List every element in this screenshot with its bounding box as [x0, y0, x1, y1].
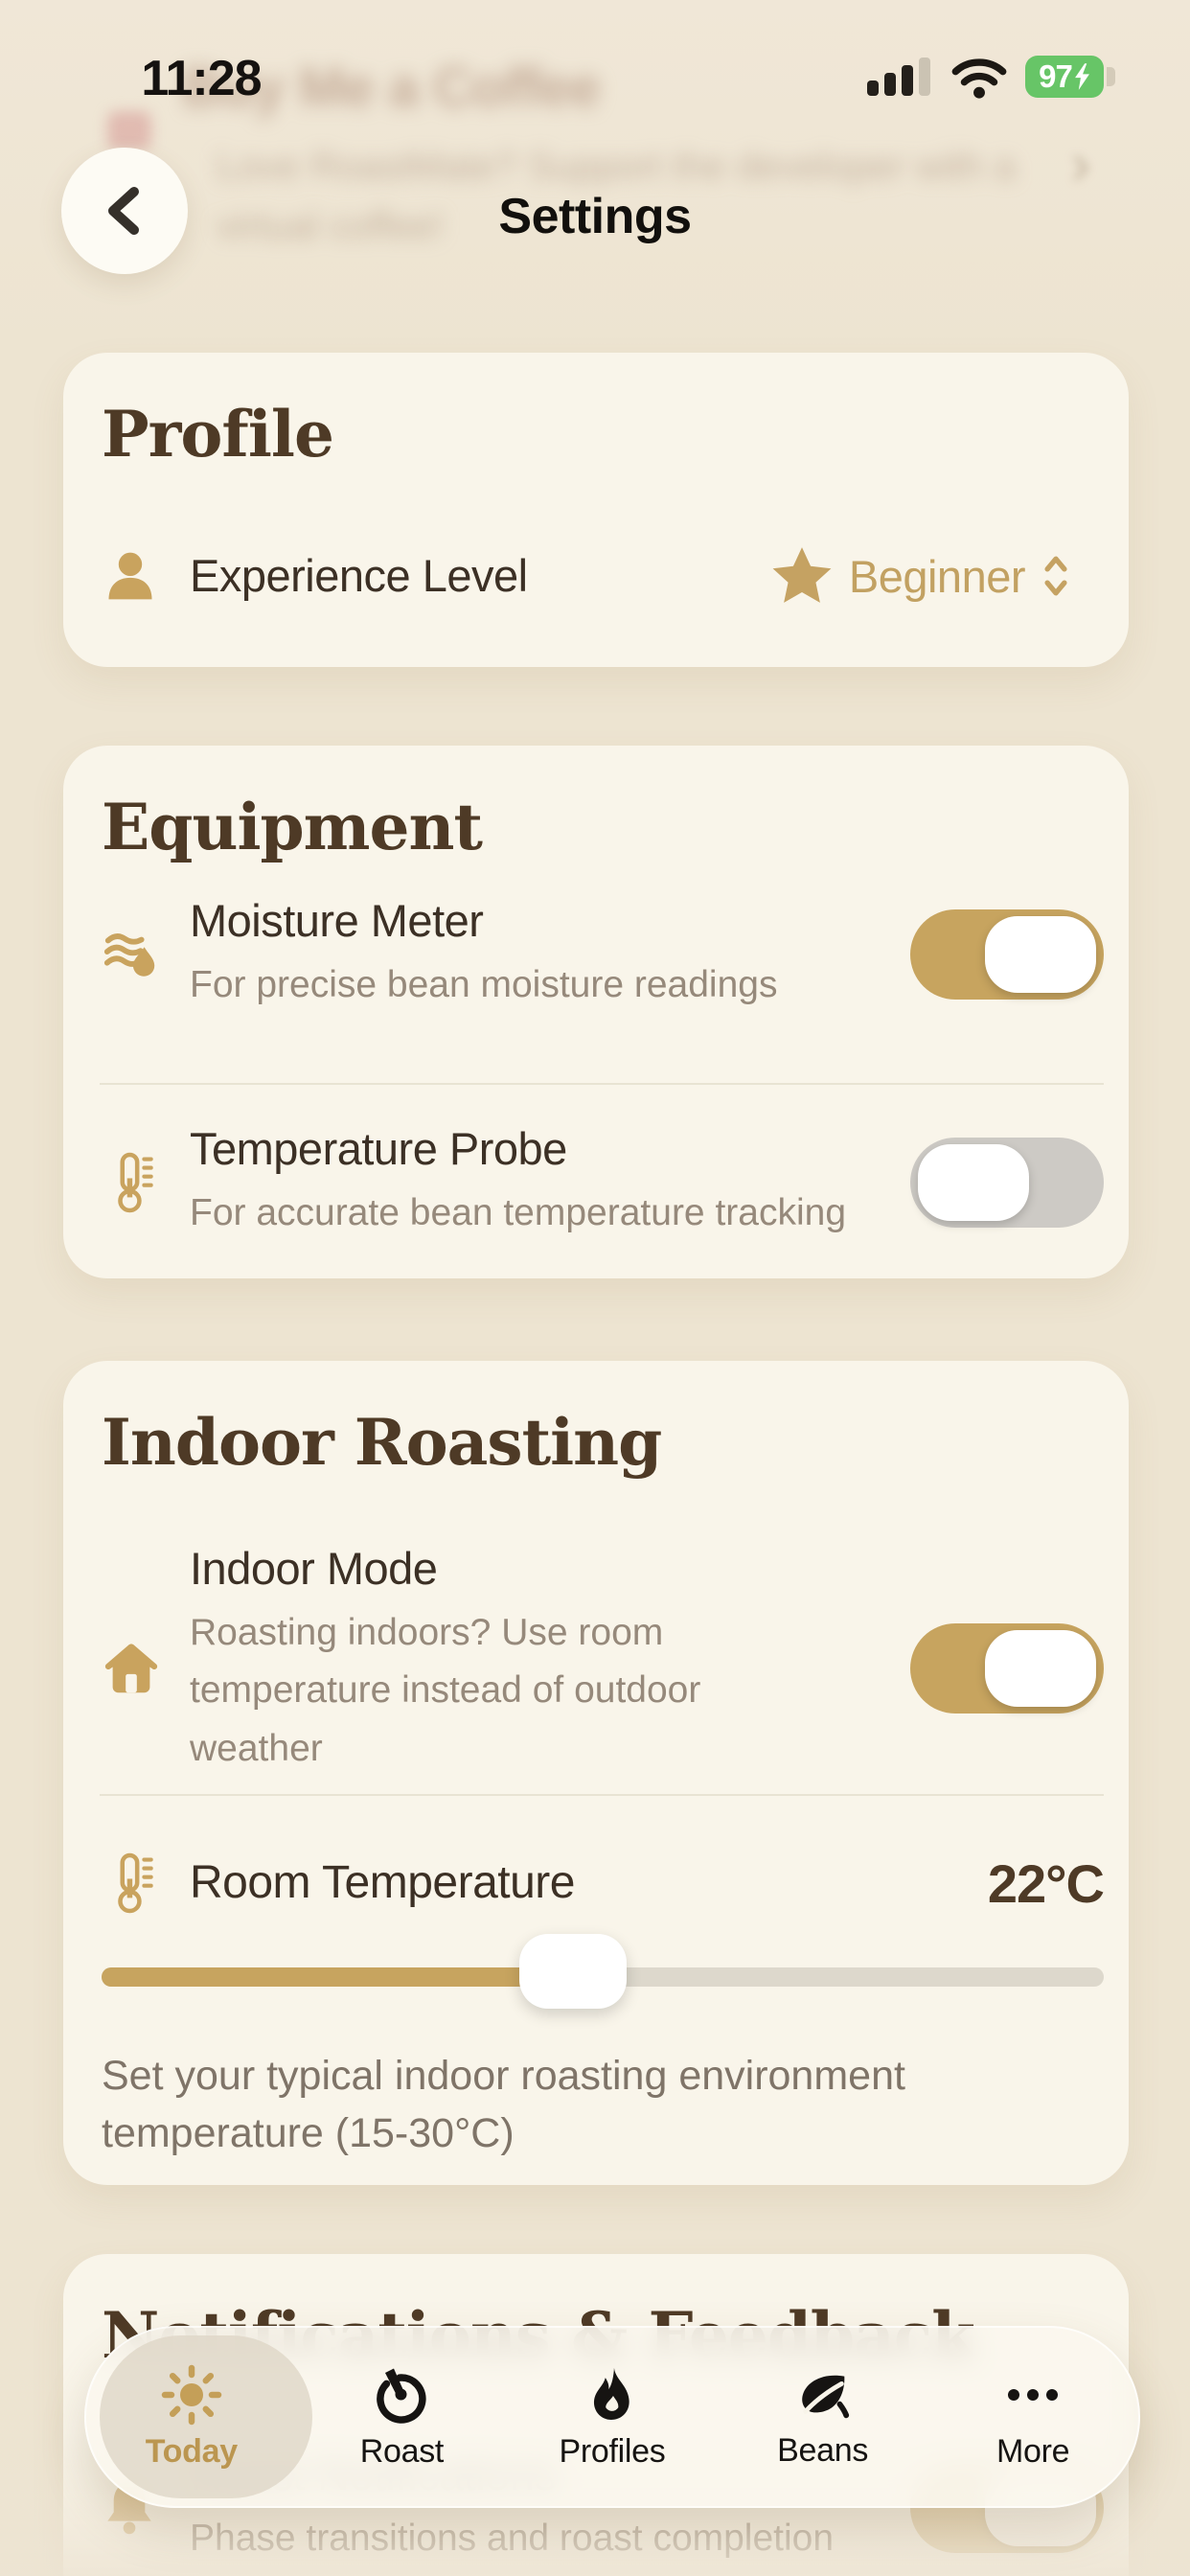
cellular-signal-icon [867, 56, 936, 96]
divider [100, 1083, 1104, 1085]
charging-bolt-icon [1074, 63, 1090, 90]
wifi-icon [950, 57, 1008, 100]
battery-indicator: 97 [1025, 56, 1104, 98]
indoor-roasting-card: Indoor Roasting Indoor Mode Roasting ind… [63, 1361, 1129, 2185]
profile-card: Profile Experience Level Beginner [63, 353, 1129, 667]
indoor-mode-subtitle: Roasting indoors? Use room temperature i… [190, 1604, 765, 1778]
timer-icon [371, 2364, 432, 2426]
toggle-knob [985, 916, 1096, 993]
temperature-probe-toggle[interactable] [910, 1138, 1104, 1228]
toggle-knob [918, 1144, 1029, 1221]
star-icon [770, 545, 834, 607]
room-temperature-row: Room Temperature 22°C [102, 1838, 1104, 1928]
tab-profiles[interactable]: Profiles [507, 2328, 718, 2506]
experience-level-row[interactable]: Experience Level Beginner [102, 514, 1104, 638]
indoor-mode-title: Indoor Mode [190, 1543, 910, 1595]
settings-screen: Buy Me a Coffee Love RoastMate? Support … [0, 0, 1190, 2576]
thermometer-icon [102, 1851, 157, 1915]
tab-roast-label: Roast [360, 2433, 444, 2471]
profile-heading: Profile [102, 397, 333, 471]
moisture-meter-row: Moisture Meter For precise bean moisture… [102, 887, 1104, 1022]
flame-icon [583, 2364, 642, 2426]
tab-profiles-label: Profiles [559, 2433, 665, 2471]
battery-percent: 97 [1039, 58, 1072, 95]
tab-more-label: More [996, 2433, 1069, 2471]
toggle-knob [985, 1630, 1096, 1707]
experience-level-value: Beginner [849, 550, 1025, 603]
indoor-mode-toggle[interactable] [910, 1623, 1104, 1713]
battery-nub [1107, 67, 1115, 86]
room-temperature-value: 22°C [988, 1852, 1104, 1915]
experience-level-picker[interactable]: Beginner [770, 545, 1104, 607]
moisture-meter-title: Moisture Meter [190, 895, 910, 947]
tab-today-label: Today [146, 2433, 238, 2471]
slider-thumb[interactable] [519, 1934, 627, 2009]
temperature-probe-title: Temperature Probe [190, 1123, 910, 1175]
temperature-probe-subtitle: For accurate bean temperature tracking [190, 1184, 910, 1242]
chevron-up-down-icon [1041, 552, 1071, 600]
status-bar: 11:28 97 [0, 0, 1190, 125]
tab-today[interactable]: Today [86, 2328, 297, 2506]
room-temperature-caption: Set your typical indoor roasting environ… [102, 2047, 1090, 2162]
moisture-meter-subtitle: For precise bean moisture readings [190, 956, 910, 1014]
tab-beans-label: Beans [777, 2432, 868, 2470]
sun-icon [161, 2364, 222, 2426]
tab-beans[interactable]: Beans [718, 2328, 928, 2506]
slider-fill [102, 1967, 573, 1987]
house-icon [102, 1639, 161, 1698]
person-icon [102, 545, 159, 607]
thermometer-icon [102, 1151, 157, 1214]
leaf-icon [792, 2365, 854, 2425]
page-title: Settings [0, 188, 1190, 245]
status-time: 11:28 [91, 50, 311, 107]
roast-notifications-subtitle: Phase transitions and roast completion [190, 2510, 910, 2567]
moisture-meter-toggle[interactable] [910, 909, 1104, 1000]
tab-more[interactable]: More [927, 2328, 1138, 2506]
divider [100, 1794, 1104, 1796]
equipment-heading: Equipment [102, 790, 482, 864]
room-temperature-label: Room Temperature [190, 1856, 988, 1909]
tab-roast[interactable]: Roast [297, 2328, 508, 2506]
indoor-roasting-heading: Indoor Roasting [102, 1405, 661, 1480]
nav-header: Settings [0, 125, 1190, 278]
moisture-icon [102, 925, 161, 984]
indoor-mode-row: Indoor Mode Roasting indoors? Use room t… [102, 1543, 1104, 1794]
tab-bar: Today Roast Profiles [84, 2326, 1140, 2508]
temperature-probe-row: Temperature Probe For accurate bean temp… [102, 1115, 1104, 1250]
ellipsis-icon [1002, 2364, 1064, 2426]
room-temperature-slider[interactable] [102, 1926, 1104, 2032]
experience-level-label: Experience Level [190, 550, 770, 602]
equipment-card: Equipment Moisture Meter For precise bea… [63, 746, 1129, 1278]
